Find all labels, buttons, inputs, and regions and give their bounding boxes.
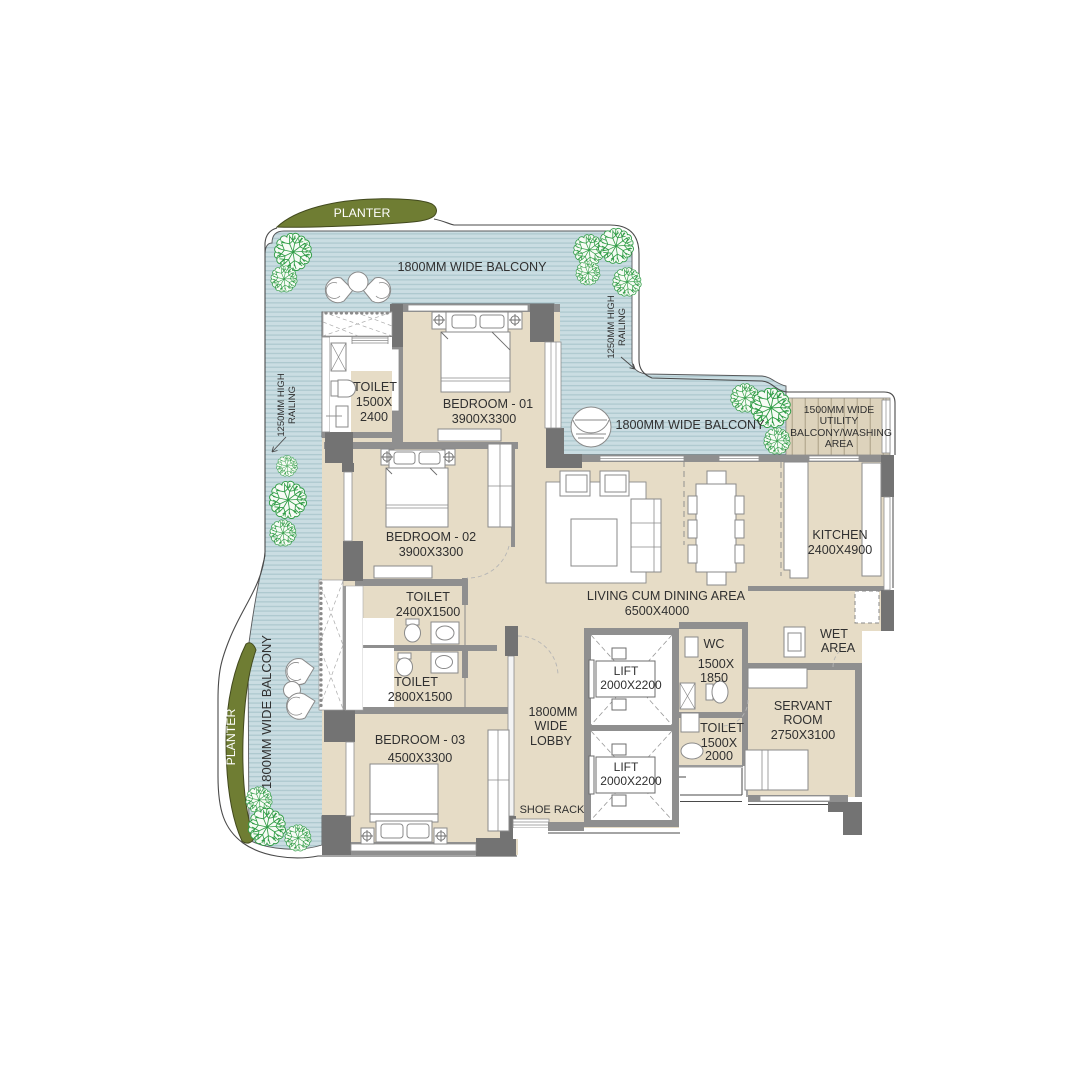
svg-text:SERVANT: SERVANT xyxy=(774,699,833,713)
svg-text:3900X3300: 3900X3300 xyxy=(399,545,463,559)
svg-text:1800MM WIDE BALCONY: 1800MM WIDE BALCONY xyxy=(259,635,274,789)
svg-text:RAILING: RAILING xyxy=(287,386,298,424)
svg-text:2750X3100: 2750X3100 xyxy=(771,728,835,742)
svg-text:1800MM: 1800MM xyxy=(529,705,578,719)
svg-text:1500X: 1500X xyxy=(356,395,393,409)
svg-text:2400: 2400 xyxy=(360,410,388,424)
svg-text:LOBBY: LOBBY xyxy=(530,734,573,748)
svg-text:2800X1500: 2800X1500 xyxy=(388,690,452,704)
svg-text:2000: 2000 xyxy=(705,749,733,763)
svg-text:LIVING CUM DINING AREA: LIVING CUM DINING AREA xyxy=(587,589,746,603)
svg-text:LIFT: LIFT xyxy=(614,760,639,774)
svg-text:AREA: AREA xyxy=(821,641,856,655)
svg-text:PLANTER: PLANTER xyxy=(334,206,391,220)
svg-text:KITCHEN: KITCHEN xyxy=(812,528,867,542)
svg-text:WC: WC xyxy=(704,637,725,651)
svg-text:ROOM: ROOM xyxy=(783,713,822,727)
svg-text:BEDROOM - 02: BEDROOM - 02 xyxy=(386,530,476,544)
svg-text:WIDE: WIDE xyxy=(535,719,568,733)
svg-text:RAILING: RAILING xyxy=(617,308,628,346)
svg-text:1800MM WIDE BALCONY: 1800MM WIDE BALCONY xyxy=(397,260,547,274)
svg-text:SHOE RACK: SHOE RACK xyxy=(520,804,585,816)
svg-text:BALCONY/WASHING: BALCONY/WASHING xyxy=(790,428,892,439)
svg-text:BEDROOM - 03: BEDROOM - 03 xyxy=(375,733,465,747)
svg-text:6500X4000: 6500X4000 xyxy=(625,604,689,618)
svg-text:2400X1500: 2400X1500 xyxy=(396,605,460,619)
svg-text:1250MM HIGH: 1250MM HIGH xyxy=(606,295,617,358)
svg-text:TOILET: TOILET xyxy=(406,590,450,604)
svg-text:2000X2200: 2000X2200 xyxy=(600,678,662,692)
svg-text:TOILET: TOILET xyxy=(394,675,438,689)
svg-text:PLANTER: PLANTER xyxy=(224,709,238,766)
svg-text:1800MM WIDE BALCONY: 1800MM WIDE BALCONY xyxy=(615,418,765,432)
svg-text:1500X: 1500X xyxy=(698,657,735,671)
svg-text:UTILITY: UTILITY xyxy=(820,416,859,427)
svg-text:3900X3300: 3900X3300 xyxy=(452,412,516,426)
svg-text:2000X2200: 2000X2200 xyxy=(600,774,662,788)
svg-text:4500X3300: 4500X3300 xyxy=(388,751,452,765)
svg-text:1250MM HIGH: 1250MM HIGH xyxy=(276,373,287,436)
svg-text:TOILET: TOILET xyxy=(353,380,397,394)
svg-text:TOILET: TOILET xyxy=(700,721,744,735)
svg-text:1500MM WIDE: 1500MM WIDE xyxy=(804,405,875,416)
svg-text:2400X4900: 2400X4900 xyxy=(808,543,872,557)
svg-text:LIFT: LIFT xyxy=(614,664,639,678)
svg-text:1850: 1850 xyxy=(700,671,728,685)
svg-text:AREA: AREA xyxy=(825,439,853,450)
svg-text:WET: WET xyxy=(820,627,848,641)
svg-text:1500X: 1500X xyxy=(701,736,738,750)
svg-text:BEDROOM - 01: BEDROOM - 01 xyxy=(443,397,533,411)
